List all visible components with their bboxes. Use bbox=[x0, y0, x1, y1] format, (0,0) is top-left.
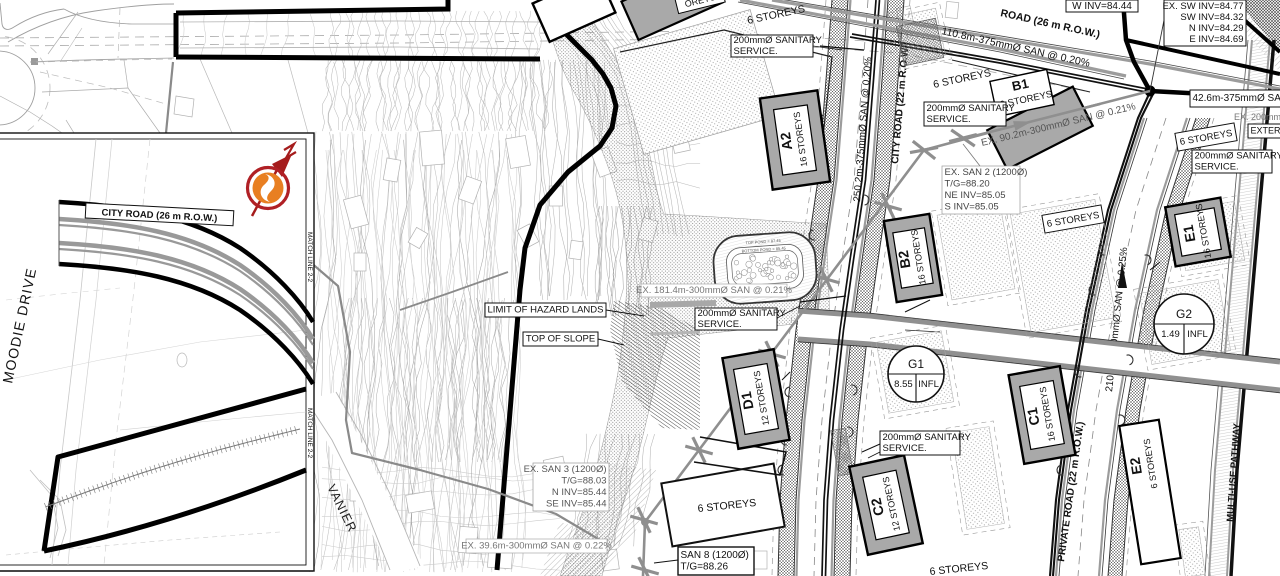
svg-text:LIMIT OF HAZARD LANDS: LIMIT OF HAZARD LANDS bbox=[488, 305, 604, 316]
svg-text:EX. SAN 3 (1200Ø): EX. SAN 3 (1200Ø) bbox=[524, 464, 607, 475]
svg-text:INFL: INFL bbox=[1187, 329, 1208, 340]
svg-text:200mmØ SANITARY: 200mmØ SANITARY bbox=[1195, 151, 1280, 162]
svg-text:EX. 39.6m-300mmØ SAN @ 0.22%: EX. 39.6m-300mmØ SAN @ 0.22% bbox=[461, 541, 612, 552]
svg-text:E1: E1 bbox=[1180, 224, 1199, 244]
svg-text:T/G=88.26: T/G=88.26 bbox=[681, 562, 729, 573]
svg-text:SE INV=85.44: SE INV=85.44 bbox=[546, 499, 606, 510]
svg-text:G2: G2 bbox=[1176, 307, 1192, 321]
svg-text:MATCH LINE 2-2: MATCH LINE 2-2 bbox=[306, 232, 313, 282]
svg-text:E INV=84.69: E INV=84.69 bbox=[1189, 34, 1243, 45]
svg-text:200mmØ SANITARY: 200mmØ SANITARY bbox=[883, 432, 972, 443]
svg-text:200mmØ SANITARY: 200mmØ SANITARY bbox=[927, 103, 1016, 114]
svg-text:1.49: 1.49 bbox=[1161, 329, 1180, 340]
svg-text:B2: B2 bbox=[895, 249, 914, 269]
svg-text:SERVICE.: SERVICE. bbox=[734, 46, 778, 57]
svg-text:T/G=88.20: T/G=88.20 bbox=[945, 179, 990, 190]
svg-text:N INV=84.29: N INV=84.29 bbox=[1189, 23, 1244, 34]
svg-text:S INV=85.05: S INV=85.05 bbox=[945, 202, 999, 213]
svg-text:200mmØ SANITARY: 200mmØ SANITARY bbox=[734, 35, 823, 46]
svg-text:A2: A2 bbox=[777, 131, 795, 151]
svg-text:E2: E2 bbox=[1126, 456, 1145, 476]
svg-text:SAN 8 (1200Ø): SAN 8 (1200Ø) bbox=[681, 550, 749, 561]
svg-text:EX. 200mmØ: EX. 200mmØ bbox=[1234, 112, 1280, 122]
svg-text:TOP OF SLOPE: TOP OF SLOPE bbox=[526, 334, 595, 345]
svg-text:EX. 181.4m-300mmØ SAN @ 0.21%: EX. 181.4m-300mmØ SAN @ 0.21% bbox=[636, 285, 792, 296]
svg-text:SERVICE.: SERVICE. bbox=[1195, 162, 1239, 173]
svg-text:SERVICE.: SERVICE. bbox=[698, 319, 742, 330]
svg-text:42.6m-375mmØ SAN: 42.6m-375mmØ SAN bbox=[1193, 93, 1280, 104]
svg-text:INFL: INFL bbox=[918, 379, 939, 390]
svg-text:200mmØ SANITARY: 200mmØ SANITARY bbox=[698, 308, 787, 319]
svg-text:MATCH LINE 2-2: MATCH LINE 2-2 bbox=[306, 408, 313, 458]
svg-text:8.55: 8.55 bbox=[894, 379, 913, 390]
svg-text:C1: C1 bbox=[1024, 406, 1043, 427]
svg-text:SW INV=84.32: SW INV=84.32 bbox=[1180, 12, 1243, 23]
svg-text:T/G=88.03: T/G=88.03 bbox=[561, 476, 606, 487]
svg-text:W INV=84.44: W INV=84.44 bbox=[1072, 1, 1132, 12]
svg-text:EXTERNAL: EXTERNAL bbox=[1251, 125, 1280, 135]
svg-text:SERVICE.: SERVICE. bbox=[883, 443, 927, 454]
svg-text:N INV=85.44: N INV=85.44 bbox=[552, 487, 607, 498]
svg-text:EX. SW INV=84.77: EX. SW INV=84.77 bbox=[1162, 1, 1243, 12]
svg-text:G1: G1 bbox=[908, 357, 924, 371]
svg-text:SERVICE.: SERVICE. bbox=[927, 114, 971, 125]
svg-text:EX. SAN 2 (1200Ø): EX. SAN 2 (1200Ø) bbox=[945, 167, 1028, 178]
svg-text:D1: D1 bbox=[738, 390, 757, 411]
svg-text:NE INV=85.05: NE INV=85.05 bbox=[945, 190, 1006, 201]
